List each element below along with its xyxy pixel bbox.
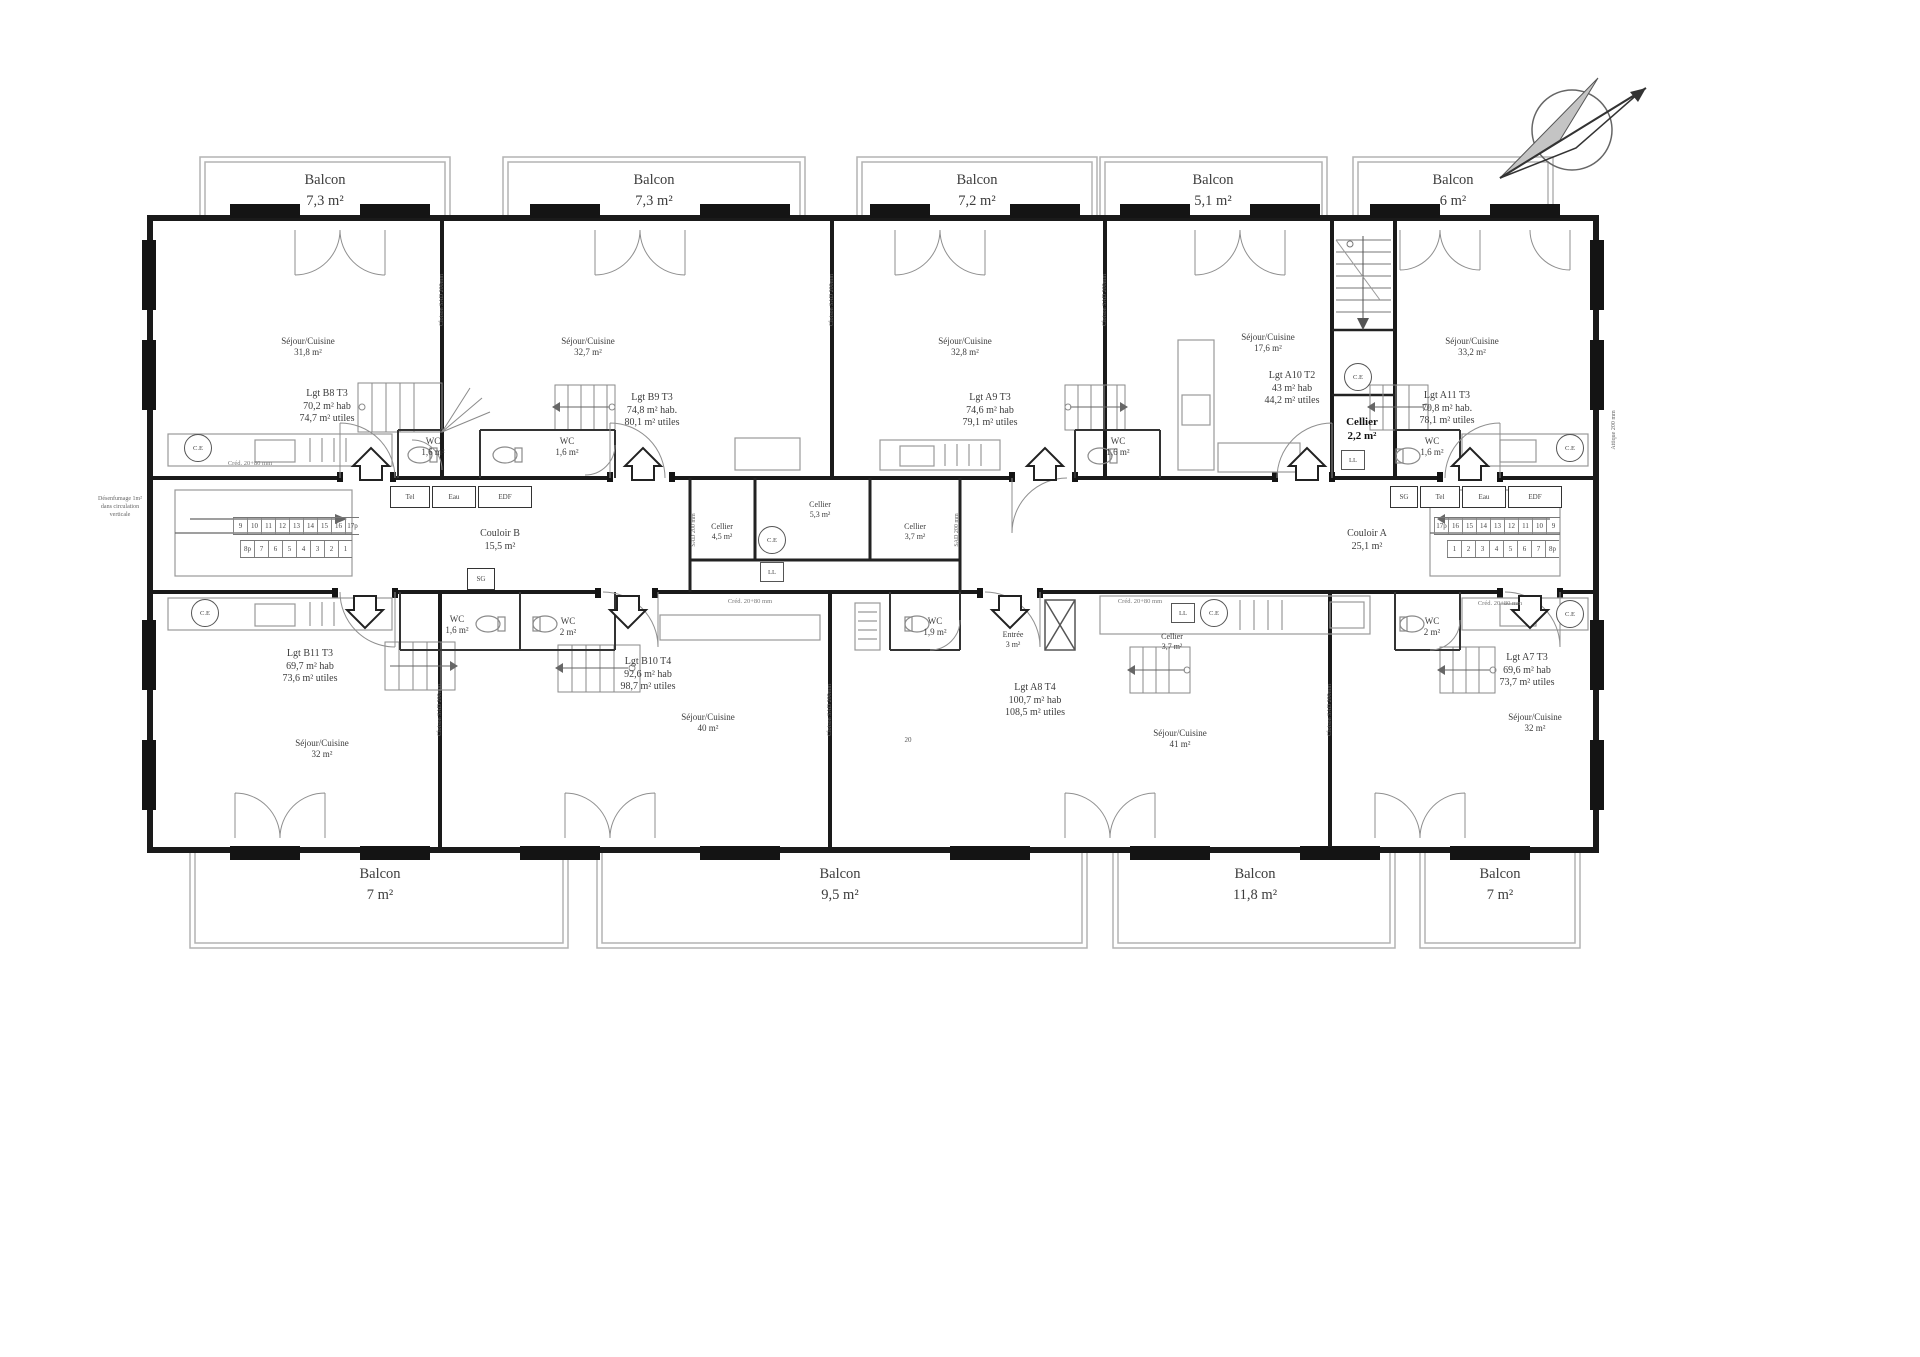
stair-numbers-right-down: 12345678p (1447, 540, 1559, 558)
edf-meter-box: EDF (1508, 486, 1562, 508)
eau-meter-box: Eau (432, 486, 476, 508)
ll-washer-badge: LL (1341, 450, 1365, 470)
room-label: Séjour/Cuisine40 m² (681, 712, 735, 735)
corridor-label: Couloir B15,5 m² (480, 528, 520, 553)
room-label: Séjour/Cuisine32,7 m² (561, 336, 615, 359)
stair-numbers-left-up: 91011121314151617p (233, 517, 359, 535)
edf-meter-box: EDF (478, 486, 532, 508)
ce-water-heater-badge: C.E (184, 434, 212, 462)
balcony-label: Balcon7 m² (1479, 864, 1520, 906)
balcony-label: Balcon7,2 m² (956, 170, 997, 212)
eau-meter-box: Eau (1462, 486, 1506, 508)
unit-label: Lgt B9 T374,8 m² hab.80,1 m² utiles (625, 392, 680, 430)
wall-annotation: Cloison SAD 200mm (1102, 274, 1108, 326)
balcony-label: Balcon5,1 m² (1192, 170, 1233, 212)
corridor-label: Couloir A25,1 m² (1347, 528, 1387, 553)
kitchen-annotation: Créd. 20+80 mm (1478, 600, 1522, 608)
cellier-label: Cellier4,5 m² (711, 522, 733, 542)
room-label: Séjour/Cuisine33,2 m² (1445, 336, 1499, 359)
technical-shaft (1045, 600, 1075, 650)
unit-label: Lgt A7 T369,6 m² hab73,7 m² utiles (1500, 652, 1555, 690)
wall-annotation: Cloison SAD 200mm (827, 684, 833, 736)
unit-label: Lgt A11 T370,8 m² hab.78,1 m² utiles (1420, 390, 1475, 428)
cellier-label: Cellier3,7 m² (904, 522, 926, 542)
wc-label: WC2 m² (1424, 616, 1440, 639)
wall-annotation: Cloison SAD 200mm (1327, 684, 1333, 736)
kitchen-annotation: Créd. 20+80 mm (228, 460, 272, 468)
balcony-label: Balcon7 m² (359, 864, 400, 906)
kitchen-counters (168, 340, 1588, 650)
balcony-label: Balcon7,3 m² (304, 170, 345, 212)
ll-washer-badge: LL (1171, 603, 1195, 623)
stair-numbers-right-up: 17p161514131211109 (1434, 517, 1560, 535)
wc-label: WC1,6 m² (1106, 436, 1129, 459)
room-label: Séjour/Cuisine32 m² (295, 738, 349, 761)
ce-water-heater-badge: C.E (191, 599, 219, 627)
ce-water-heater-badge: C.E (1344, 363, 1372, 391)
wall-annotation: SAD 200 mm (954, 513, 960, 546)
tel-meter-box: Tel (1420, 486, 1460, 508)
unit-label: Lgt A8 T4100,7 m² hab108,5 m² utiles (1005, 682, 1065, 720)
balcony-label: Balcon6 m² (1432, 170, 1473, 212)
room-label: Séjour/Cuisine17,6 m² (1241, 332, 1295, 355)
edge-annotation: Attique 200 mm (1611, 410, 1617, 449)
ll-washer-badge: LL (760, 562, 784, 582)
wc-label: WC1,6 m² (421, 436, 444, 459)
wc-label: WC1,6 m² (445, 614, 468, 637)
wc-label: WC1,6 m² (1420, 436, 1443, 459)
north-arrow-icon (1500, 78, 1646, 178)
wall-annotation: SAD 200 mm (691, 513, 697, 546)
unit-label: Lgt A9 T374,6 m² hab79,1 m² utiles (963, 392, 1018, 430)
unit-label: Lgt B8 T370,2 m² hab74,7 m² utiles (300, 388, 355, 426)
wall-annotation: Cloison SAD 200mm (439, 274, 445, 326)
unit-label: Lgt B10 T492,6 m² hab98,7 m² utiles (621, 656, 676, 694)
ce-water-heater-badge: C.E (1200, 599, 1228, 627)
cellier-label: Cellier3,7 m² (1161, 632, 1183, 652)
ce-water-heater-badge: C.E (758, 526, 786, 554)
cellier-label: Cellier5,3 m² (809, 500, 831, 520)
balcony-label: Balcon11,8 m² (1233, 864, 1277, 906)
stair-numbers-left-down: 8p7654321 (240, 540, 352, 558)
balcony-label: Balcon9,5 m² (819, 864, 860, 906)
sg-meter-box: SG (467, 568, 495, 590)
dimension-label: 20 (905, 736, 912, 745)
room-label: Séjour/Cuisine31,8 m² (281, 336, 335, 359)
ce-water-heater-badge: C.E (1556, 600, 1584, 628)
cellier-label: Cellier2,2 m² (1346, 416, 1378, 444)
room-label: Séjour/Cuisine41 m² (1153, 728, 1207, 751)
ce-water-heater-badge: C.E (1556, 434, 1584, 462)
unit-label: Lgt B11 T369,7 m² hab73,6 m² utiles (283, 648, 338, 686)
unit-label: Lgt A10 T243 m² hab44,2 m² utiles (1265, 370, 1320, 408)
room-label: Séjour/Cuisine32,8 m² (938, 336, 992, 359)
smoke-extraction-note: Désenfumage 1m² dans circulation vertica… (98, 496, 142, 519)
common-staircase (1336, 236, 1391, 330)
tel-meter-box: Tel (390, 486, 430, 508)
room-label: Séjour/Cuisine32 m² (1508, 712, 1562, 735)
floorplan-sheet: Balcon7,3 m² Balcon7,3 m² Balcon7,2 m² B… (0, 0, 1920, 1357)
wall-annotation: Cloison SAD 200mm (829, 274, 835, 326)
kitchen-annotation: Créd. 20+80 mm (1118, 598, 1162, 606)
wc-label: WC2 m² (560, 616, 576, 639)
wall-annotation: Cloison SAD 200mm (437, 684, 443, 736)
balcony-label: Balcon7,3 m² (633, 170, 674, 212)
kitchen-annotation: Créd. 20+80 mm (728, 598, 772, 606)
wc-label: WC1,6 m² (555, 436, 578, 459)
sg-meter-box: SG (1390, 486, 1418, 508)
entree-label: Entrée3 m² (1003, 630, 1024, 650)
wc-label: WC1,9 m² (923, 616, 946, 639)
